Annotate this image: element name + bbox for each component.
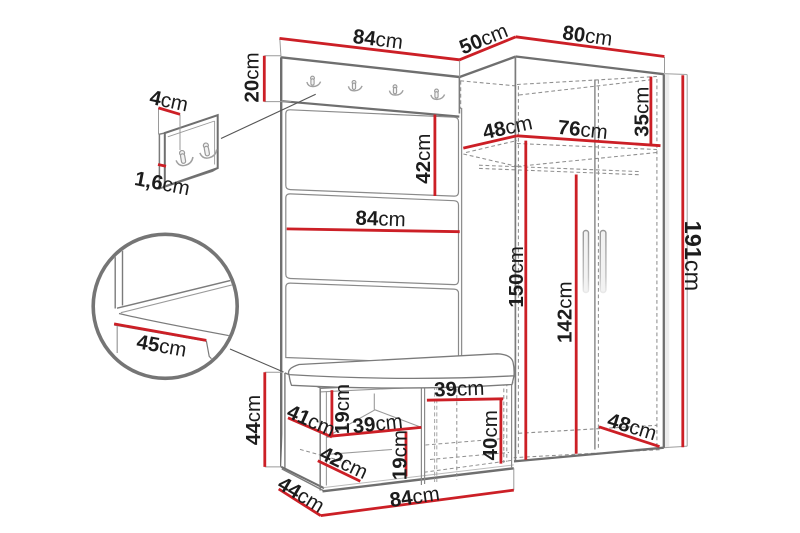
svg-text:35cm: 35cm	[631, 87, 654, 137]
svg-text:42cm: 42cm	[412, 134, 435, 184]
svg-text:150cm: 150cm	[505, 246, 528, 308]
svg-text:40cm: 40cm	[479, 410, 502, 460]
svg-text:19cm: 19cm	[331, 384, 354, 434]
svg-text:191cm: 191cm	[680, 221, 706, 292]
svg-text:142cm: 142cm	[553, 281, 576, 343]
svg-text:44cm: 44cm	[242, 395, 265, 445]
svg-text:39cm: 39cm	[434, 377, 485, 402]
svg-text:84cm: 84cm	[355, 207, 406, 232]
svg-text:20cm: 20cm	[241, 52, 264, 102]
svg-text:19cm: 19cm	[388, 430, 411, 480]
